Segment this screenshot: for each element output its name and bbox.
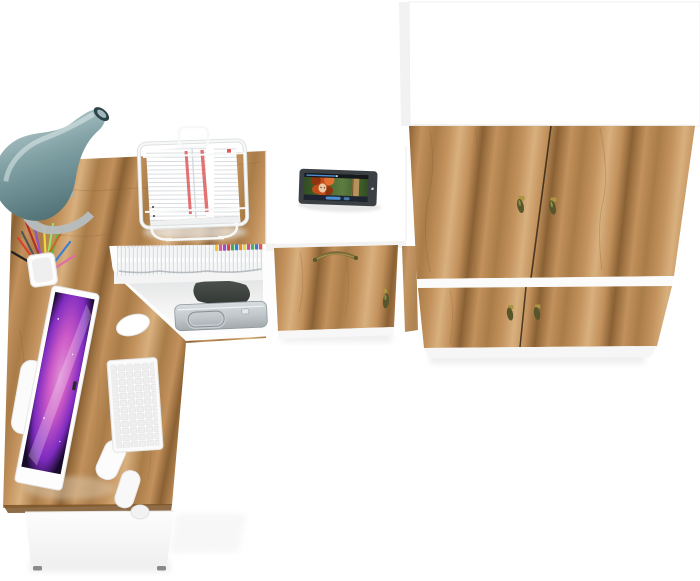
desk-foot: [33, 566, 42, 571]
magazine-row: [117, 243, 263, 276]
keyhole: [383, 289, 387, 293]
key-highlight: [384, 295, 386, 300]
pen-cup-inner: [31, 257, 53, 283]
player-button-main[interactable]: [326, 196, 341, 200]
keyboard[interactable]: [107, 357, 163, 452]
doc-dot: [153, 215, 155, 217]
metal-briefcase: [174, 301, 267, 331]
stand-foot: [131, 505, 149, 519]
scene-svg: [0, 0, 700, 581]
wardrobe-lower-doors: [418, 286, 672, 348]
tablet: [297, 169, 382, 214]
desk-front-panel: [25, 511, 174, 571]
magazine-tab: [223, 244, 226, 251]
doc-red-mark: [227, 149, 231, 153]
arc-handle-mount: [354, 256, 358, 260]
wardrobe-top-surface: [409, 2, 700, 126]
magazine-tab: [239, 244, 242, 251]
briefcase-latch: [242, 309, 249, 314]
desk-side-shade: [170, 514, 246, 553]
front-panel: [25, 511, 174, 564]
desk-return: [266, 146, 406, 251]
player-button-small[interactable]: [344, 197, 350, 200]
wardrobe: [399, 2, 700, 358]
magazine-tab: [247, 243, 250, 250]
hutch-door-panel[interactable]: [274, 245, 398, 331]
desk-foot: [157, 566, 166, 571]
magazine-tab: [219, 244, 222, 251]
magazine-tab: [231, 244, 234, 251]
arc-handle-mount: [313, 258, 317, 262]
magazine-tab: [215, 245, 218, 252]
wardrobe-plinth: [424, 346, 657, 358]
wardrobe-upper-doors: [409, 126, 695, 279]
wardrobe-top-edge: [410, 125, 695, 126]
product-render-stage: [0, 0, 700, 581]
magazine-tab: [235, 244, 238, 251]
keyboard-keys[interactable]: [110, 362, 160, 449]
lower-doors-panel: [418, 286, 672, 348]
dark-bag-object: [193, 280, 250, 304]
magazine-tab: [243, 244, 246, 251]
doc-dot: [152, 206, 154, 208]
magazine-tab: [227, 244, 230, 251]
